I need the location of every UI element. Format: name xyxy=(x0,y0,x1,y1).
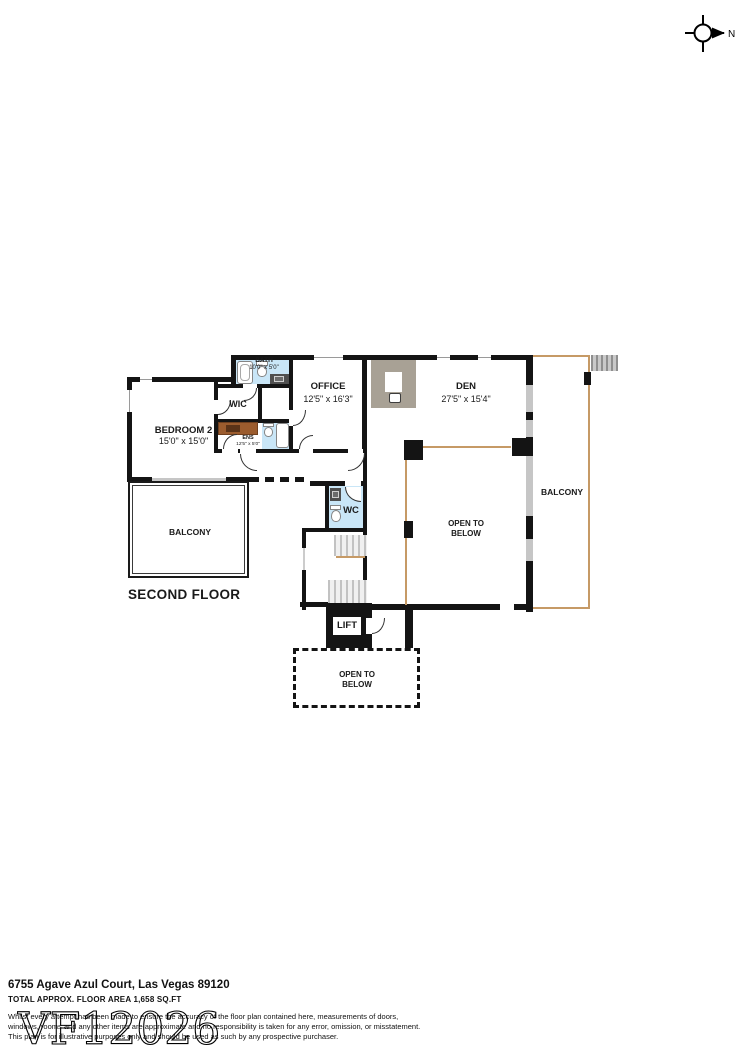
door-arc xyxy=(372,618,385,634)
property-address: 6755 Agave Azul Court, Las Vegas 89120 xyxy=(8,979,230,991)
post xyxy=(404,521,413,538)
window xyxy=(437,355,450,360)
room-label-open-below-bottom: OPEN TO BELOW xyxy=(325,670,389,689)
glass-railing xyxy=(526,385,533,412)
open-below-edge xyxy=(418,446,511,448)
wc-sink-basin xyxy=(332,491,339,498)
glass-railing xyxy=(526,420,533,437)
room-label-den: DEN 27'5" x 15'4" xyxy=(420,381,512,405)
room-dims: 12'5" x 5'0" xyxy=(232,442,264,448)
room-label-bath: BATH 10'0" x 5'0" xyxy=(241,357,287,372)
room-label-office: OFFICE 12'5" x 16'3" xyxy=(294,381,362,405)
open-below-line2: BELOW xyxy=(435,529,497,539)
room-label-ens: ENS 12'5" x 5'0" xyxy=(232,435,264,447)
room-name: BALCONY xyxy=(153,527,227,537)
disclaimer-line-2: windows, rooms and any other items are a… xyxy=(8,1022,420,1031)
glass-railing xyxy=(526,456,533,516)
room-name: OFFICE xyxy=(294,381,362,392)
wall xyxy=(289,356,293,452)
floor-title: SECOND FLOOR xyxy=(128,587,278,603)
room-name: BATH xyxy=(241,357,287,365)
lift-label-box: LIFT xyxy=(333,617,361,635)
door-gap xyxy=(345,481,361,486)
wall xyxy=(325,486,329,532)
door-gap xyxy=(222,449,238,453)
disclaimer-line-3: This plan is for illustrative purposes o… xyxy=(8,1032,338,1041)
room-label-balcony-right: BALCONY xyxy=(535,487,589,497)
ens-bathtub xyxy=(276,423,289,448)
lift-label: LIFT xyxy=(337,620,357,631)
exterior-stairs xyxy=(591,355,618,371)
post xyxy=(404,440,423,460)
room-label-bedroom2: BEDROOM 2 15'0" x 15'0" xyxy=(131,425,236,447)
door-arc xyxy=(299,435,313,449)
window xyxy=(140,377,152,382)
room-dims: 15'0" x 15'0" xyxy=(131,436,236,447)
total-floor-area: TOTAL APPROX. FLOOR AREA 1,658 SQ.FT xyxy=(8,995,181,1004)
window xyxy=(127,390,132,412)
door-arc xyxy=(293,410,306,426)
room-dims: 10'0" x 5'0" xyxy=(241,365,287,372)
stair-handrail xyxy=(336,556,365,558)
door-gap xyxy=(299,449,313,453)
post xyxy=(512,438,528,456)
window xyxy=(302,548,306,570)
door-arc xyxy=(240,454,257,471)
post xyxy=(405,608,413,650)
room-name: WC xyxy=(337,505,365,516)
room-dims: 12'5" x 16'3" xyxy=(294,394,362,405)
post xyxy=(584,372,591,385)
open-below-line1: OPEN TO xyxy=(325,670,389,680)
room-name: BEDROOM 2 xyxy=(131,425,236,436)
room-label-open-below-main: OPEN TO BELOW xyxy=(435,519,497,538)
disclaimer-line-1: Whilst every attempt has been made to en… xyxy=(8,1012,398,1021)
den-bar-sink xyxy=(389,393,401,403)
glass-railing xyxy=(526,539,533,561)
floor-plan: LIFT BEDROOM 2 15'0" x xyxy=(0,0,745,1053)
open-below-line1: OPEN TO xyxy=(435,519,497,529)
staircase-upper xyxy=(334,535,367,556)
room-name: ENS xyxy=(232,435,264,442)
room-label-wc: WC xyxy=(337,505,365,516)
balcony-right-edge xyxy=(588,355,590,609)
room-name: BALCONY xyxy=(535,487,589,497)
wall xyxy=(258,384,262,421)
floorplan-page: N xyxy=(0,0,745,1053)
room-label-balcony-left: BALCONY xyxy=(153,527,227,537)
room-name: WIC xyxy=(222,399,254,410)
bath-sink xyxy=(274,376,284,382)
door-gap xyxy=(500,604,514,610)
window xyxy=(478,355,491,360)
room-dims: 27'5" x 15'4" xyxy=(420,394,512,405)
window xyxy=(314,355,343,360)
wall xyxy=(302,532,306,610)
open-below-line2: BELOW xyxy=(325,680,389,690)
balcony-right-edge xyxy=(533,607,590,609)
den-bar-notch xyxy=(385,372,402,392)
balcony-right-edge xyxy=(533,355,590,357)
wall xyxy=(302,528,367,532)
half-wall-dashed xyxy=(250,477,310,482)
toilet-bowl xyxy=(264,427,273,437)
door-gap xyxy=(240,449,256,453)
wall xyxy=(362,356,367,452)
room-label-wic: WIC xyxy=(222,399,254,410)
room-name: DEN xyxy=(420,381,512,392)
